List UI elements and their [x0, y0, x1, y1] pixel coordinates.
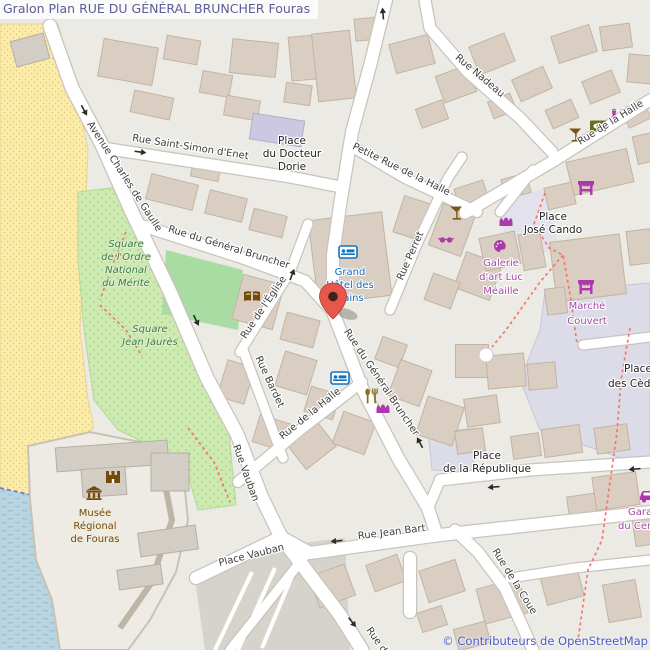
svg-text:de Fouras: de Fouras [71, 534, 120, 545]
building [626, 229, 650, 266]
svg-text:des Cèd: des Cèd [608, 378, 650, 390]
building [627, 54, 650, 84]
svg-text:Gara: Gara [628, 507, 650, 518]
building [199, 71, 232, 98]
building [312, 30, 357, 102]
map-canvas: Avenue Charles de Gaulle Rue Saint-Simon… [0, 0, 650, 650]
building [544, 287, 567, 315]
poi-label-galerie: Galerie d'art Luc Méaille [479, 258, 523, 297]
page-title: Gralon Plan RUE DU GÉNÉRAL BRUNCHER Four… [0, 0, 318, 19]
svg-text:du Cen: du Cen [618, 521, 650, 532]
map-viewport[interactable]: Avenue Charles de Gaulle Rue Saint-Simon… [0, 0, 650, 650]
building [81, 466, 127, 497]
svg-text:du Docteur: du Docteur [263, 148, 322, 160]
building [527, 362, 557, 390]
svg-text:Musée: Musée [79, 507, 111, 519]
svg-text:Place: Place [539, 211, 567, 223]
svg-text:Galerie: Galerie [483, 258, 519, 269]
croissant-icon [500, 218, 513, 227]
svg-text:de la République: de la République [443, 463, 531, 475]
hotel-bed-icon [339, 246, 357, 258]
building [594, 424, 630, 454]
svg-text:de l'Ordre: de l'Ordre [101, 252, 151, 263]
castle-icon [106, 471, 120, 483]
svg-text:Couvert: Couvert [567, 316, 607, 327]
building [511, 433, 542, 460]
svg-text:Marché: Marché [569, 300, 606, 312]
svg-text:Place: Place [278, 135, 306, 147]
svg-text:du Mérite: du Mérite [102, 277, 150, 289]
svg-text:Méaille: Méaille [483, 285, 518, 297]
svg-text:National: National [105, 265, 147, 276]
building [464, 395, 501, 427]
svg-text:Régional: Régional [73, 520, 116, 532]
hotel-bed-icon [331, 372, 349, 384]
svg-text:Grand: Grand [335, 267, 366, 278]
building [592, 472, 640, 511]
svg-text:Dorie: Dorie [278, 161, 306, 173]
svg-text:José Cando: José Cando [523, 224, 582, 236]
svg-text:Square: Square [132, 324, 167, 335]
svg-text:Place: Place [473, 450, 501, 462]
croissant-icon [377, 405, 390, 414]
building [151, 453, 189, 491]
svg-text:Jean Jaurès: Jean Jaurès [120, 336, 178, 348]
building [541, 424, 583, 457]
small-plaza [479, 348, 493, 362]
building [284, 82, 313, 105]
svg-text:Square: Square [108, 239, 143, 250]
building [599, 23, 632, 51]
osm-attribution-link[interactable]: © Contributeurs de OpenStreetMap [442, 634, 648, 648]
building [163, 35, 201, 65]
building [602, 579, 641, 622]
svg-text:d'art Luc: d'art Luc [479, 272, 523, 283]
svg-text:Place: Place [624, 363, 650, 375]
building [229, 39, 278, 78]
open-book-icon [244, 291, 260, 301]
